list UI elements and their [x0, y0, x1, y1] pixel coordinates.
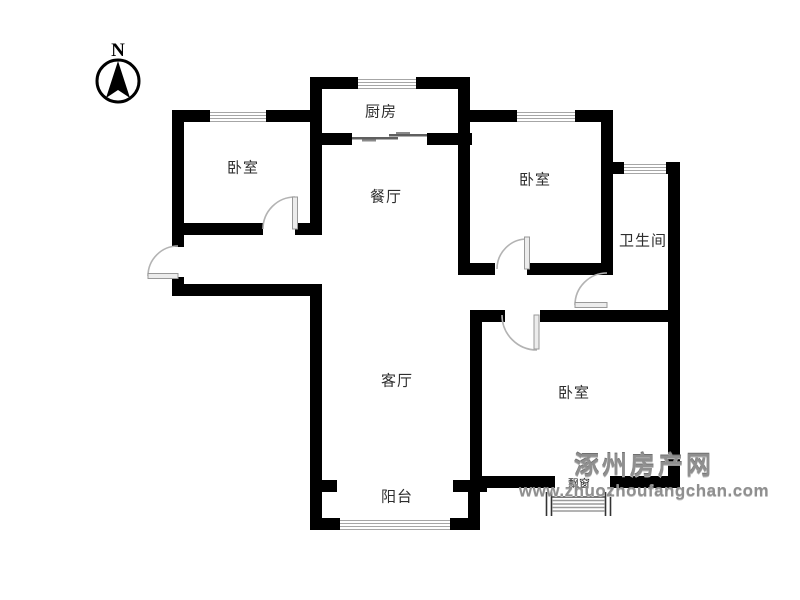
watermark-site-name: 涿州房产网	[516, 453, 772, 479]
north-compass-icon: N	[97, 40, 139, 102]
kitchen-sliding-door	[352, 132, 427, 142]
room-label-bathroom: 卫生间	[619, 230, 667, 251]
watermark: 涿州房产网 www.zhuozhoufangchan.com	[516, 453, 772, 500]
bedroom-ne-door	[497, 237, 530, 269]
room-label-kitchen: 厨房	[365, 101, 397, 122]
watermark-site-url: www.zhuozhoufangchan.com	[516, 482, 772, 500]
room-label-bedroom-ne: 卧室	[519, 169, 551, 190]
room-label-living: 客厅	[381, 370, 413, 391]
entry-door	[148, 246, 178, 279]
room-label-bedroom-se: 卧室	[558, 382, 590, 403]
room-label-bedroom-nw: 卧室	[227, 157, 259, 178]
room-label-dining: 餐厅	[370, 186, 402, 207]
room-label-balcony: 阳台	[381, 486, 413, 507]
bedroom-nw-door	[263, 197, 298, 229]
floor-plan: N	[0, 0, 800, 600]
bedroom-se-door	[502, 315, 539, 350]
compass-n-label: N	[111, 40, 125, 61]
bathroom-door	[575, 273, 607, 308]
north-arrow-icon	[106, 61, 130, 98]
plan-graphics: N	[0, 0, 800, 600]
